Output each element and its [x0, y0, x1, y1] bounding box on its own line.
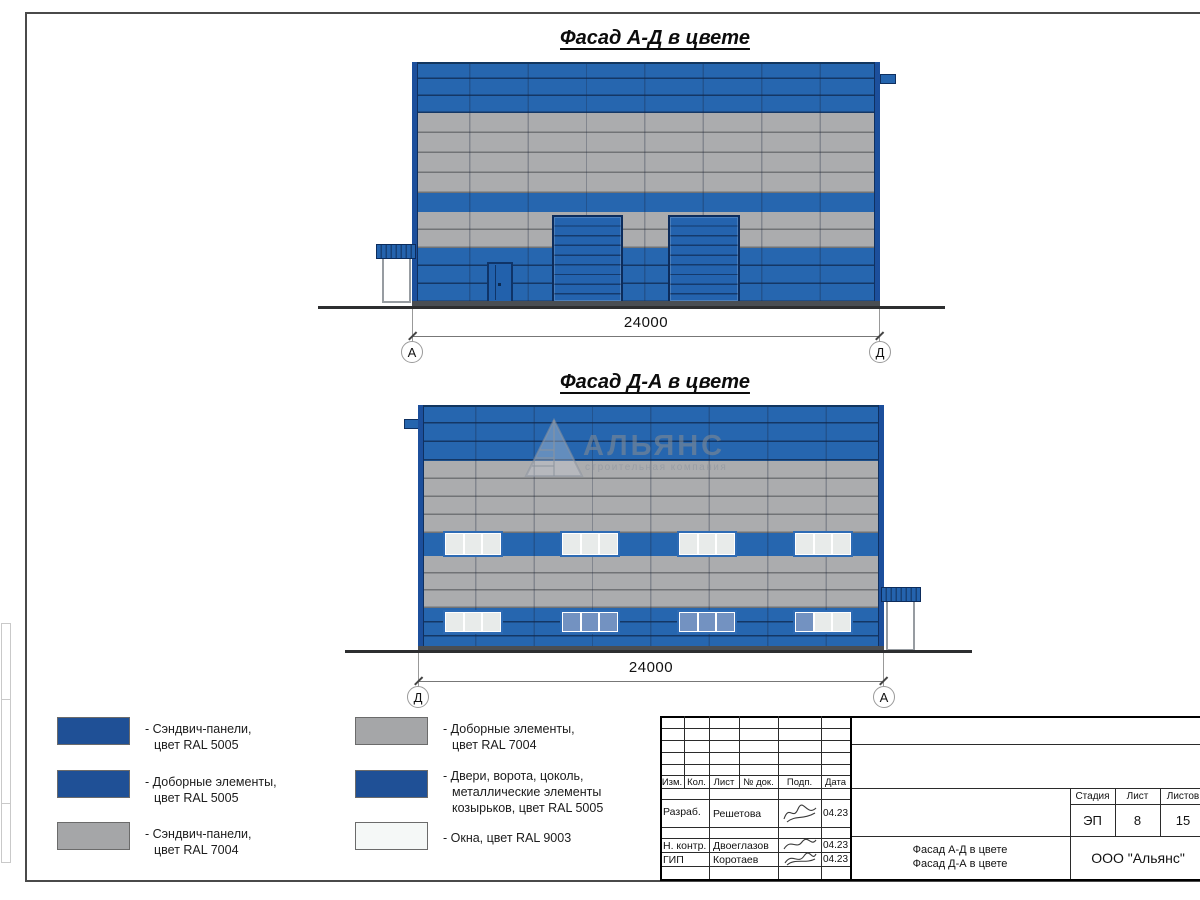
facade1-band-blue-bottom [412, 248, 880, 303]
tb-name: Решетова [713, 808, 761, 820]
window-pane-tinted [680, 613, 697, 631]
facade1-sectional-gate-2 [668, 215, 740, 303]
window-pane [563, 534, 580, 554]
tb-doc-title: Фасад А-Д в цвете Фасад Д-А в цвете [850, 843, 1070, 871]
facade1-corner-trim-right [874, 62, 880, 303]
tb-stage-value: ЭП [1070, 813, 1115, 828]
watermark-brand-text: АЛЬЯНС [583, 430, 725, 463]
signature-icon [781, 801, 819, 825]
window-pane-tinted [699, 613, 716, 631]
legend-label: - Доборные элементы, цвет RAL 5005 [145, 774, 277, 806]
facade1-title: Фасад А-Д в цвете [420, 27, 890, 50]
tb-col-kol: Кол. [684, 777, 709, 788]
facade2-window-upper-4 [793, 531, 853, 557]
legend-line: цвет RAL 7004 [145, 842, 251, 858]
company-logo-watermark [524, 418, 588, 478]
facade2-window-upper-1 [443, 531, 503, 557]
window-pane-tinted [796, 613, 813, 631]
window-pane [833, 613, 850, 631]
tb-col-ndok: № док. [739, 777, 778, 788]
legend-line: - Доборные элементы, [443, 722, 575, 736]
tb-stage-col: Листов [1160, 791, 1200, 802]
window-pane [483, 613, 500, 631]
facade1-axis-marker-right: Д [869, 341, 891, 363]
legend-swatch-sandwich-ral5005 [57, 717, 130, 745]
facade2-roof-edge [418, 405, 884, 407]
window-pane [717, 534, 734, 554]
window-pane [600, 534, 617, 554]
window-pane [815, 534, 832, 554]
dimension-line [412, 336, 880, 337]
door-handle [498, 283, 501, 286]
tb-date: 04.23 [821, 808, 850, 819]
legend-swatch-windows-ral9003 [355, 822, 428, 850]
facade1-drawing [412, 62, 880, 303]
legend-line: - Доборные элементы, [145, 775, 277, 789]
tb-col-izm: Изм. [660, 777, 684, 788]
tb-date: 04.23 [821, 854, 850, 865]
facade2-window-lower-3 [677, 610, 737, 634]
window-pane [483, 534, 500, 554]
door-sidelight-divider [495, 265, 496, 300]
facade1-band-blue-middle [412, 193, 880, 212]
window-pane [446, 613, 463, 631]
legend-swatch-sandwich-ral7004 [57, 822, 130, 850]
window-pane [465, 613, 482, 631]
tb-stage-col: Лист [1115, 791, 1160, 802]
facade1-dimension-value: 24000 [412, 314, 880, 331]
window-pane-tinted [600, 613, 617, 631]
window-pane [699, 534, 716, 554]
watermark-tagline: строительная компания [585, 462, 727, 473]
facade1-band-blue-top [412, 62, 880, 113]
legend-swatch-doors-ral5005 [355, 770, 428, 798]
window-pane-tinted [563, 613, 580, 631]
tb-role: Разраб. [663, 806, 701, 818]
facade1-band-gray-upper [412, 113, 880, 193]
tb-stage-col: Стадия [1070, 791, 1115, 802]
facade2-porch-frame [886, 600, 915, 651]
legend-line: - Сэндвич-панели, [145, 827, 251, 841]
legend-swatch-trim-ral5005 [57, 770, 130, 798]
legend-label: - Сэндвич-панели, цвет RAL 5005 [145, 721, 251, 753]
facade2-ground-line [345, 650, 972, 653]
facade1-axis-marker-left: А [401, 341, 423, 363]
window-pane [796, 534, 813, 554]
frame-side-cell [1, 623, 11, 701]
facade1-band-gray-lower [412, 212, 880, 248]
legend-label: - Двери, ворота, цоколь, металлические э… [443, 768, 603, 816]
legend-line: цвет RAL 7004 [443, 737, 575, 753]
facade1-ground-line [318, 306, 945, 309]
legend-swatch-trim-ral7004 [355, 717, 428, 745]
facade1-entry-door [487, 262, 513, 303]
facade2-corner-trim-left [418, 405, 424, 651]
window-pane-tinted [582, 613, 599, 631]
tb-col-data: Дата [821, 777, 850, 788]
tb-doc-line1: Фасад А-Д в цвете [913, 844, 1008, 856]
tb-col-podp: Подп. [778, 777, 821, 788]
facade1-porch-canopy [376, 244, 416, 259]
frame-side-cell [1, 699, 11, 805]
tb-name: Коротаев [713, 854, 758, 866]
window-pane [815, 613, 832, 631]
window-pane [446, 534, 463, 554]
window-pane-tinted [717, 613, 734, 631]
window-pane [465, 534, 482, 554]
facade1-roof-edge [412, 62, 880, 64]
tb-date: 04.23 [821, 840, 850, 851]
facade2-window-lower-4 [793, 610, 853, 634]
facade2-title: Фасад Д-А в цвете [420, 371, 890, 394]
tb-role: Н. контр. [663, 840, 706, 852]
facade2-band-gray-lower [418, 556, 884, 608]
facade2-axis-marker-right: А [873, 686, 895, 708]
facade2-window-upper-2 [560, 531, 620, 557]
facade2-window-upper-3 [677, 531, 737, 557]
tb-doc-line2: Фасад Д-А в цвете [913, 858, 1008, 870]
tb-company-name: ООО "Альянс" [1070, 850, 1200, 866]
legend-line: козырьков, цвет RAL 5005 [443, 800, 603, 816]
tb-sheet-total: 15 [1160, 813, 1200, 828]
dimension-line [418, 681, 884, 682]
sheet-frame-top [25, 12, 1200, 14]
legend-line: - Сэндвич-панели, [145, 722, 251, 736]
window-pane [582, 534, 599, 554]
legend-label: - Сэндвич-панели, цвет RAL 7004 [145, 826, 251, 858]
legend-line: цвет RAL 5005 [145, 790, 277, 806]
legend-label: - Доборные элементы, цвет RAL 7004 [443, 721, 575, 753]
facade2-porch-canopy [881, 587, 921, 602]
facade2-dimension-value: 24000 [418, 659, 884, 676]
facade1-sectional-gate-1 [552, 215, 623, 303]
legend-line: металлические элементы [443, 784, 603, 800]
signature-icon [782, 850, 818, 867]
legend-line: - Двери, ворота, цоколь, [443, 769, 584, 783]
facade2-window-lower-2 [560, 610, 620, 634]
tb-role: ГИП [663, 854, 684, 866]
facade1-porch-frame [382, 257, 411, 303]
frame-side-cell [1, 803, 11, 863]
facade1-roof-gutter-tab [880, 74, 896, 84]
facade2-window-lower-1 [443, 610, 503, 634]
title-block: Изм. Кол. Лист № док. Подп. Дата Разраб.… [660, 716, 1200, 881]
window-pane [833, 534, 850, 554]
legend-line: - Окна, цвет RAL 9003 [443, 831, 571, 845]
facade1-corner-trim-left [412, 62, 418, 303]
legend-line: цвет RAL 5005 [145, 737, 251, 753]
tb-col-list: Лист [709, 777, 739, 788]
facade2-axis-marker-left: Д [407, 686, 429, 708]
facade2-corner-trim-right [878, 405, 884, 651]
tb-sheet-number: 8 [1115, 813, 1160, 828]
window-pane [680, 534, 697, 554]
legend-label: - Окна, цвет RAL 9003 [443, 830, 571, 846]
tb-name: Двоеглазов [713, 840, 769, 852]
sheet-frame-left [25, 12, 27, 882]
